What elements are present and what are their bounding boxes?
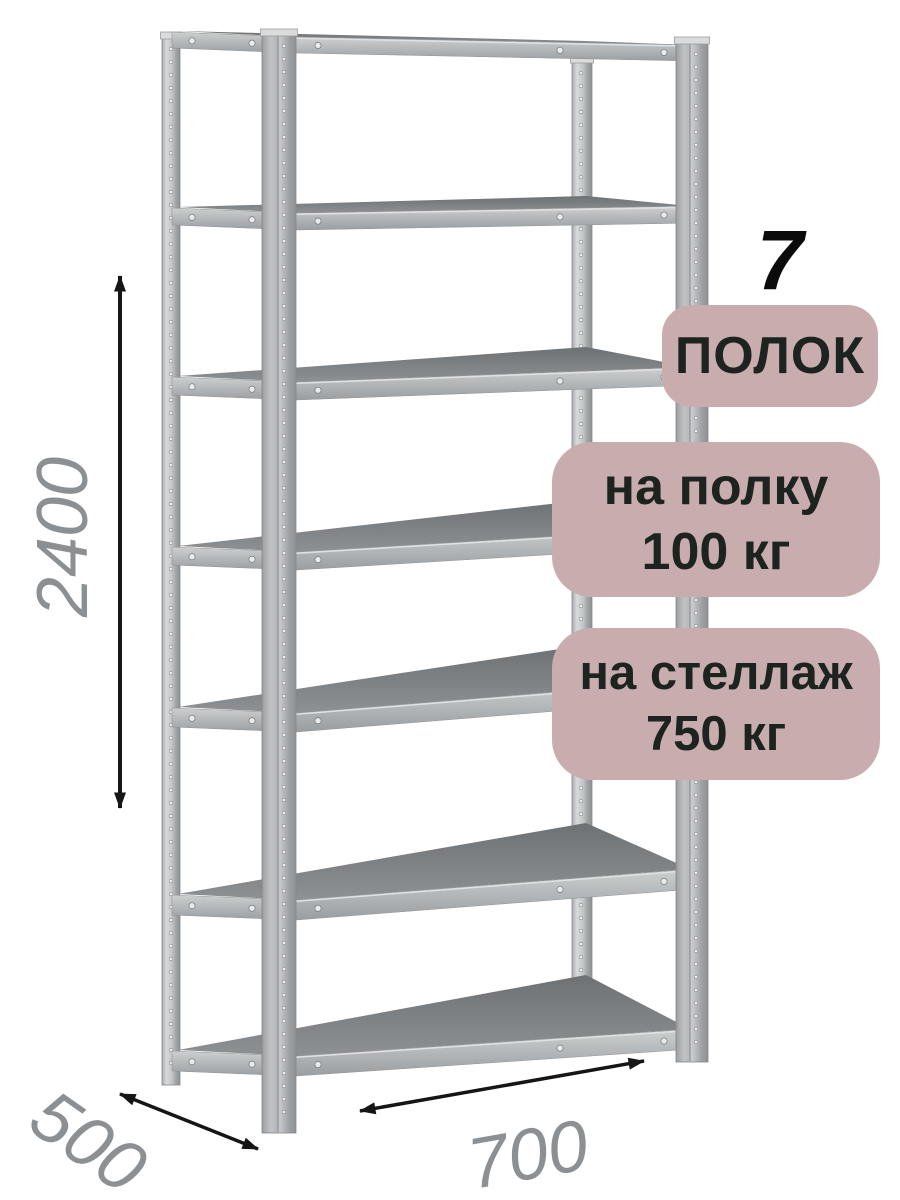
rivet xyxy=(315,557,321,563)
post-top-cap xyxy=(675,37,710,44)
per-rack-load-badge: на стеллаж 750 кг xyxy=(552,628,880,780)
shelf xyxy=(172,196,694,230)
front-left-post xyxy=(261,29,298,1133)
rivet xyxy=(557,1045,563,1051)
rivet xyxy=(189,214,195,220)
rivet xyxy=(315,1061,321,1067)
rivet xyxy=(661,212,667,218)
rivet xyxy=(189,38,195,44)
rivet xyxy=(315,387,321,393)
rivet xyxy=(249,40,255,46)
rivet xyxy=(557,214,563,220)
rivet xyxy=(189,384,195,390)
rivet xyxy=(189,715,195,721)
shelves-count-number: 7 xyxy=(728,218,832,314)
per-shelf-load-label: на полку xyxy=(604,455,829,520)
rivet xyxy=(189,903,195,909)
height-dimension-label: 2400 xyxy=(27,427,99,647)
rivet xyxy=(249,1061,255,1067)
rivet xyxy=(661,1038,667,1044)
rivet xyxy=(189,554,195,560)
shelving-rack-illustration xyxy=(0,0,900,1200)
per-rack-load-value: 750 кг xyxy=(646,704,786,765)
shelf xyxy=(172,975,694,1076)
post-top-cap xyxy=(261,29,298,36)
rivet xyxy=(189,1059,195,1065)
shelf xyxy=(172,31,694,61)
rivet xyxy=(315,218,321,224)
rivet xyxy=(661,878,667,884)
rivet xyxy=(249,718,255,724)
rivet xyxy=(315,718,321,724)
shelf xyxy=(172,347,694,400)
rivet xyxy=(249,905,255,911)
per-shelf-load-badge: на полку 100 кг xyxy=(552,442,880,597)
rivet xyxy=(249,556,255,562)
shelf xyxy=(172,823,694,920)
rivet xyxy=(661,49,667,55)
rivet xyxy=(557,47,563,53)
rivet xyxy=(249,386,255,392)
per-shelf-load-value: 100 кг xyxy=(642,520,791,585)
rivet xyxy=(315,905,321,911)
product-image: 2400 500 700 7 ПОЛОК на полку 100 кг на … xyxy=(0,0,900,1200)
rivet xyxy=(557,378,563,384)
per-rack-load-label: на стеллаж xyxy=(579,643,852,704)
rivet xyxy=(249,217,255,223)
rivet xyxy=(557,886,563,892)
rivet xyxy=(315,42,321,48)
shelves-count-badge-label: ПОЛОК xyxy=(675,324,865,389)
shelves-count-badge: ПОЛОК xyxy=(662,305,878,407)
